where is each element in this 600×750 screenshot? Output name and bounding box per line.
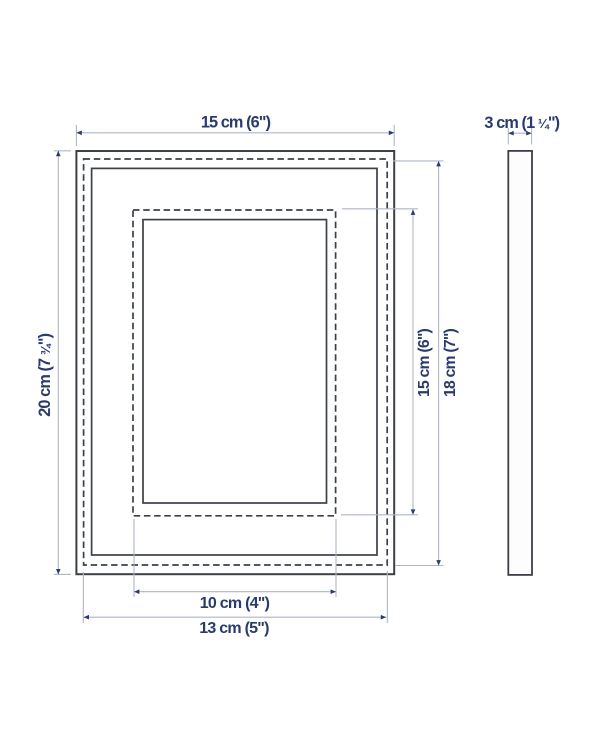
svg-text:15 cm (6"): 15 cm (6") — [416, 328, 433, 397]
svg-text:3 cm (1 ¼"): 3 cm (1 ¼") — [484, 114, 559, 132]
svg-text:10 cm (4"): 10 cm (4") — [200, 595, 270, 612]
svg-text:13 cm (5"): 13 cm (5") — [199, 620, 269, 637]
svg-text:18 cm (7"): 18 cm (7") — [442, 328, 459, 397]
svg-text:15 cm (6"): 15 cm (6") — [201, 114, 271, 132]
svg-text:20 cm (7 ¾"): 20 cm (7 ¾") — [36, 333, 54, 416]
